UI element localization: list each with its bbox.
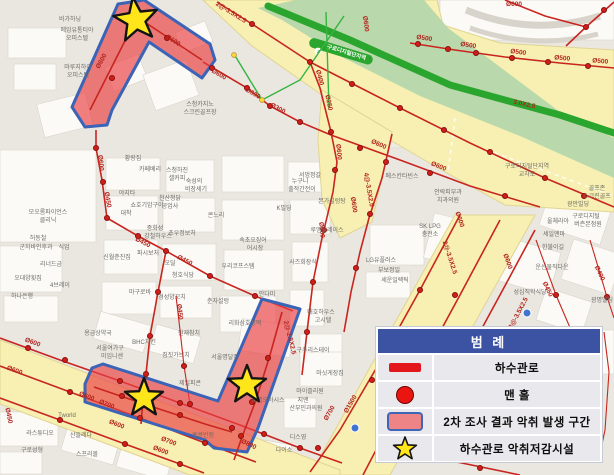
manhole-icon [315,445,320,450]
manhole-icon [117,378,122,383]
place-label: 4브레이 [50,281,70,289]
place-label: 광안빌딩 [567,200,589,208]
manhole-icon [477,465,482,470]
legend-panel: 범 례 하수관로 맨 홀 2차 조사 결과 악취 발생 구간 하수관로 악취저감… [375,326,603,463]
manhole-icon [297,119,302,124]
place-label: 파시보처 [137,249,159,257]
place-label: 구로성형 [21,446,43,454]
place-label: 세운일렉틱 [381,276,409,284]
manhole-icon [383,159,388,164]
legend-row-sewer-pipe: 하수관로 [378,355,600,380]
manhole-icon [553,292,558,297]
manhole-icon [353,265,358,270]
place-label: 하나은행 [11,292,33,300]
place-label: SK LPG [419,224,441,230]
place-label: 콘느리 [208,211,225,219]
place-label: 사즈회장식 [289,258,317,266]
legend-label: 하수관로 악취저감시설 [434,436,600,461]
manhole-icon [441,127,446,132]
place-label: 오딜 [164,259,175,267]
place-label: 고시텔 [315,316,332,324]
place-label: 초우정보처 [168,229,196,237]
place-label: 원재참치 [178,329,200,337]
place-label: K빌딩 [276,204,291,212]
manhole-icon [119,393,124,398]
place-label: 리화삼호상떡 [228,319,261,327]
pipe-size-label: Ø700 [323,404,337,422]
place-label: 스크린골프장 [183,108,217,116]
pipe-size-label: Ø600 [96,155,104,172]
manhole-icon [542,175,547,180]
pipe-size-label: Ø600 [334,144,342,161]
manhole-icon [202,440,207,445]
map-figure: Ø600Ø600Ø600Ø600Ø3002@-3.5X2.5Ø400Ø250Ø5… [0,0,614,475]
manhole-icon [328,129,333,134]
pipe-size-label: Ø600 [506,1,522,8]
place-label: 버츤본점원 [574,220,602,228]
legend-row-odor-zone: 2차 조사 결과 악취 발생 구간 [378,409,600,434]
place-label: 황랑집 [125,154,142,162]
manhole-icon [297,445,302,450]
manhole-icon [187,401,192,406]
place-label: 속초오징어 [239,236,267,244]
manhole-icon [252,293,257,298]
place-label: 카페베리 [139,165,161,173]
place-label: 마구로바 [129,288,152,296]
place-label: 한불이길 [542,243,564,251]
manhole-icon [93,145,98,150]
place-label: 산부인과의원 [289,404,322,412]
manhole-icon [207,273,212,278]
place-label: 마루지하이 [64,63,92,71]
legend-title: 범 례 [378,329,600,353]
manhole-icon [177,400,182,405]
manhole-icon [62,357,67,362]
place-label: 구주리스테이 [296,346,329,354]
place-label: 클리닉 [40,216,57,224]
manhole-icon [265,355,270,360]
place-label: 미임니센 [101,352,124,360]
manhole-icon [601,7,606,12]
place-label: 마싯게장집 [316,369,344,377]
place-label: LG유플러스 [366,256,397,264]
place-label: 교차로 [519,170,536,178]
place-label: 어시장 [247,244,264,252]
place-label: 경성양꼬치 [158,293,186,301]
place-label: 쇼호기암구이 [130,201,163,209]
manhole-icon [67,389,72,394]
manhole-icon [229,425,234,430]
place-label: 오피스텔 [66,34,89,42]
place-label: Tworld [58,413,76,419]
legend-row-odor-facility: 하수관로 악취저감시설 [378,436,600,461]
place-label: 신월춘진집 [103,253,131,261]
place-label: 디스영 [290,433,307,441]
place-label: 안다미 [259,290,276,298]
place-label: 출작간전이 [288,185,316,193]
legend-label: 2차 조사 결과 악취 발생 구간 [434,409,600,434]
place-label: 식업 [58,243,69,251]
place-label: 마이즐리원 [296,387,324,395]
place-label: 안락피부과 [434,188,462,196]
place-label: 충전소 [422,230,439,238]
manhole-icon [181,363,186,368]
manhole-icon [509,55,514,60]
legend-label: 하수관로 [434,355,600,380]
parking-icon [523,309,531,317]
place-label: 스프리몰 [76,450,99,458]
odor-zone-icon [378,409,434,434]
place-label: 야지타 [119,189,136,197]
place-label: BHC치킨 [132,338,156,346]
place-label: 골프존 [589,185,606,192]
place-label: 오피스텔 [67,71,90,79]
place-label: 셀커피 [169,174,186,182]
manhole-icon [473,50,478,55]
manhole-icon [137,415,142,420]
place-label: 루엠플레이스 [310,226,344,234]
place-label: 다이소 [276,446,293,454]
place-label: 메잉유통티아 [60,26,94,34]
manhole-icon [369,377,374,382]
manhole-icon [427,170,432,175]
manhole-icon [109,75,114,80]
manhole-icon [177,461,182,466]
place-label: 서멍정갈 [299,171,322,179]
place-label: 군자바인후과 [19,243,53,251]
place-label: 치과의원 [437,196,459,204]
manhole-icon [100,179,105,184]
manhole-icon [585,63,590,68]
place-label: 본가설렁탕 [318,197,346,205]
place-label: 용금상약국 [84,329,112,337]
place-label: 짐짓가브치 [162,351,190,359]
manhole-icon [349,81,354,86]
manhole-icon [367,211,372,216]
place-label: 세일엔마 [543,230,566,238]
manhole-icon [332,167,337,172]
manhole-icon [583,24,588,29]
manhole-icon [378,382,434,407]
place-label: 성심직학식당 [513,288,547,296]
place-label: 허동철 [30,234,47,242]
place-label: 지엔 [297,396,309,404]
place-label: 춘자설렁 [207,297,229,305]
manhole-icon [357,145,362,150]
place-label: 스청카지노 [186,100,214,108]
place-label: 매호하우스 [307,308,335,316]
manhole-icon [261,431,266,436]
place-label: 스크린골프 [583,193,611,200]
manhole-icon [452,292,457,297]
place-label: 대착 [120,209,132,217]
place-label: 비가하닝 [59,15,81,23]
place-label: 서울여가구 [96,344,124,352]
place-label: 숙성의 [186,177,203,185]
odor-reduction-facility-star-icon [378,436,434,461]
manhole-icon [163,248,168,253]
place-label: 울체라아 [547,217,570,225]
manhole-icon [25,345,30,350]
place-label: 메스칸타빈스 [385,172,419,180]
place-label: 비장세기 [185,185,207,193]
place-label: 산들레다 [70,431,93,439]
place-label: 청호식당 [172,271,195,279]
manhole-icon [177,412,182,417]
place-label: 홍콩반점 [192,431,214,439]
manhole-icon [155,289,160,294]
pipe-size-label: Ø300 [269,102,287,116]
place-label: 서울명달집 [211,353,239,361]
place-label: 스청하진 [166,166,188,174]
place-label: 제일피콘 [179,379,202,387]
pipe-size-label: Ø500 [554,54,571,62]
legend-row-manhole: 맨 홀 [378,382,600,407]
place-label: 라스튜디오 [26,429,54,437]
place-label: 구로디지털 [572,212,600,220]
manhole-icon [415,41,420,46]
pipe-size-label: Ø600 [210,68,228,82]
manhole-icon [104,215,109,220]
pipe-size-label: Ø500 [592,57,609,65]
place-label: 광명빌딩 [591,296,613,304]
place-label: 구로디지털단지역 [505,162,549,170]
manhole-icon [397,105,402,110]
manhole-icon [545,59,550,64]
place-label: 우리코프스템 [221,262,254,270]
manhole-icon [122,441,127,446]
place-label: 오대양횟집 [14,274,42,282]
pipe-size-label: Ø600 [244,87,262,101]
manhole-icon [310,279,315,284]
manhole-icon [307,59,312,64]
place-label: 운선물직다운 [535,263,569,271]
bus-stop-icon [351,424,359,432]
manhole-icon [143,371,148,376]
place-label: 공업사 [162,202,179,210]
manhole-icon [445,46,450,51]
manhole-icon [417,287,422,292]
manhole-icon [304,329,309,334]
manhole-icon [487,149,492,154]
manhole-icon [147,333,152,338]
legend-label: 맨 홀 [434,382,600,407]
place-label: 리너드금 [40,260,63,268]
manhole-icon [249,21,254,26]
place-label: 부보정일 [378,266,400,274]
place-label: 중화성 [147,224,164,232]
place-label: 모오롬파이언스 [29,208,68,216]
place-label: 천산청닭 [159,194,182,202]
sewer-pipe-line-icon [378,355,434,380]
pipe-size-label: Ø450 [103,191,113,208]
manhole-icon [502,193,507,198]
